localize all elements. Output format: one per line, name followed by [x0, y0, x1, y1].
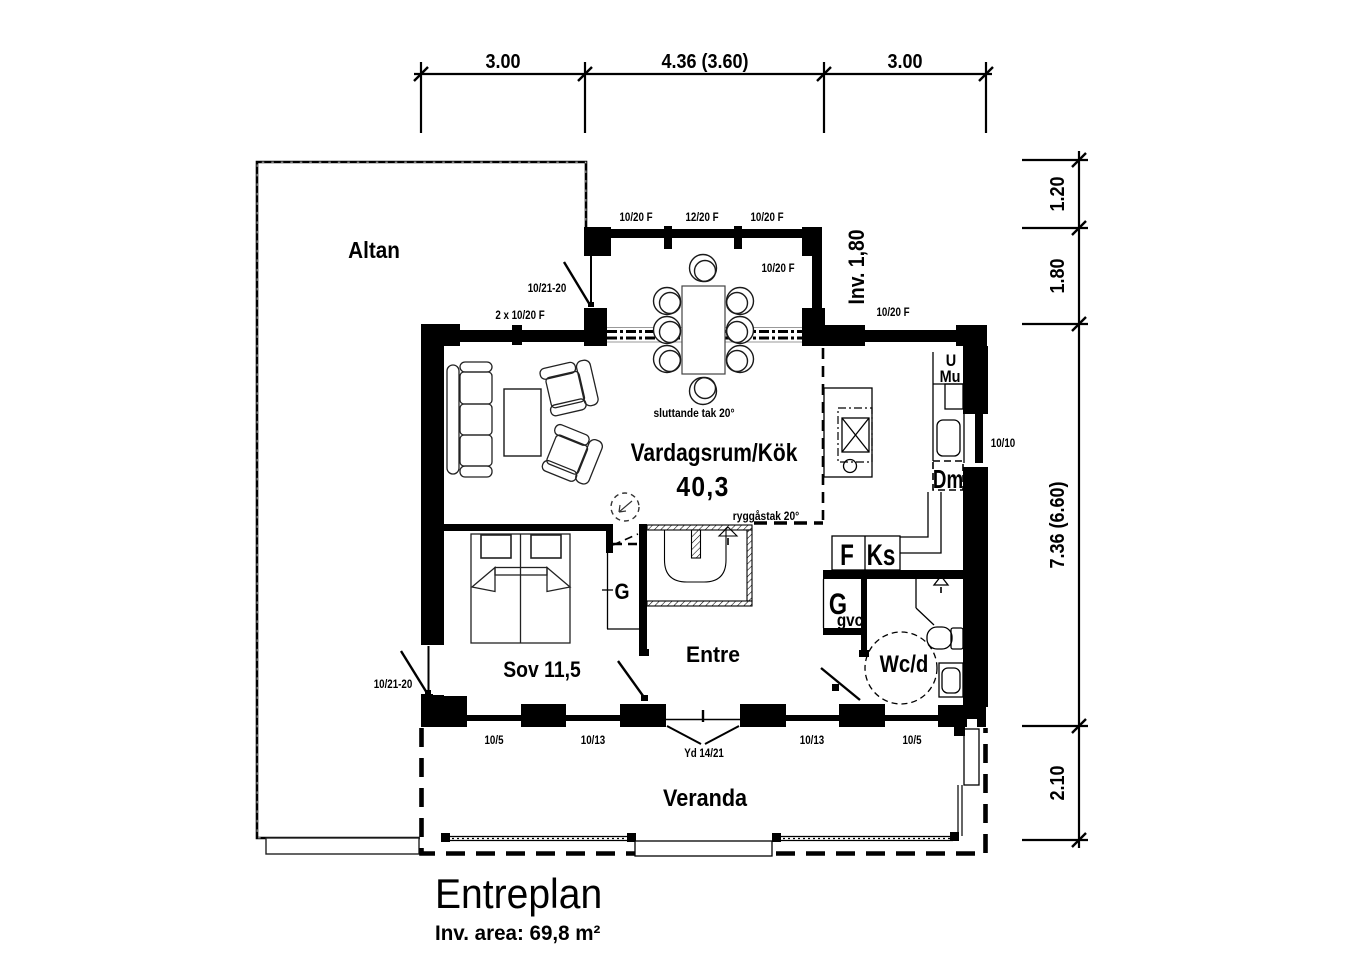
svg-text:F: F: [840, 538, 854, 572]
svg-text:Altan: Altan: [348, 237, 400, 263]
svg-text:1.80: 1.80: [1047, 258, 1069, 293]
svg-text:Dm: Dm: [933, 464, 963, 494]
svg-text:10/13: 10/13: [581, 734, 605, 747]
svg-text:Entre: Entre: [686, 642, 740, 668]
svg-text:G: G: [614, 580, 629, 604]
svg-text:10/10: 10/10: [991, 437, 1015, 450]
svg-text:Entreplan: Entreplan: [435, 870, 602, 918]
svg-text:40,3: 40,3: [676, 471, 729, 503]
svg-text:Veranda: Veranda: [663, 784, 747, 811]
svg-text:10/20 F: 10/20 F: [750, 211, 784, 224]
svg-text:10/21-20: 10/21-20: [374, 678, 413, 691]
svg-text:4.36 (3.60): 4.36 (3.60): [661, 51, 748, 73]
svg-text:2 x 10/20 F: 2 x 10/20 F: [495, 309, 545, 322]
svg-text:3.00: 3.00: [485, 51, 520, 73]
svg-text:10/13: 10/13: [800, 734, 824, 747]
svg-text:10/20 F: 10/20 F: [761, 262, 795, 275]
svg-text:10/5: 10/5: [902, 734, 921, 747]
svg-text:Yd 14/21: Yd 14/21: [684, 747, 724, 760]
svg-text:2.10: 2.10: [1047, 765, 1069, 800]
svg-text:10/20 F: 10/20 F: [619, 211, 653, 224]
svg-text:Ks: Ks: [867, 538, 896, 572]
svg-text:Inv. area: 69,8 m²: Inv. area: 69,8 m²: [435, 922, 600, 945]
svg-text:3.00: 3.00: [887, 51, 922, 73]
svg-text:12/20 F: 12/20 F: [685, 211, 719, 224]
svg-text:1.20: 1.20: [1047, 176, 1069, 211]
svg-text:gvc: gvc: [837, 610, 863, 630]
svg-text:Mu: Mu: [940, 368, 961, 386]
svg-text:Wc/d: Wc/d: [880, 650, 929, 677]
svg-text:Sov 11,5: Sov 11,5: [503, 658, 580, 682]
svg-text:7.36 (6.60): 7.36 (6.60): [1047, 481, 1069, 568]
svg-text:ryggåstak 20°: ryggåstak 20°: [733, 510, 799, 523]
svg-text:10/5: 10/5: [484, 734, 503, 747]
svg-text:Inv. 1,80: Inv. 1,80: [845, 230, 869, 305]
svg-text:Vardagsrum/Kök: Vardagsrum/Kök: [631, 438, 798, 466]
svg-text:10/20 F: 10/20 F: [876, 306, 910, 319]
svg-text:10/21-20: 10/21-20: [528, 282, 567, 295]
svg-text:sluttande tak 20°: sluttande tak 20°: [653, 407, 734, 420]
